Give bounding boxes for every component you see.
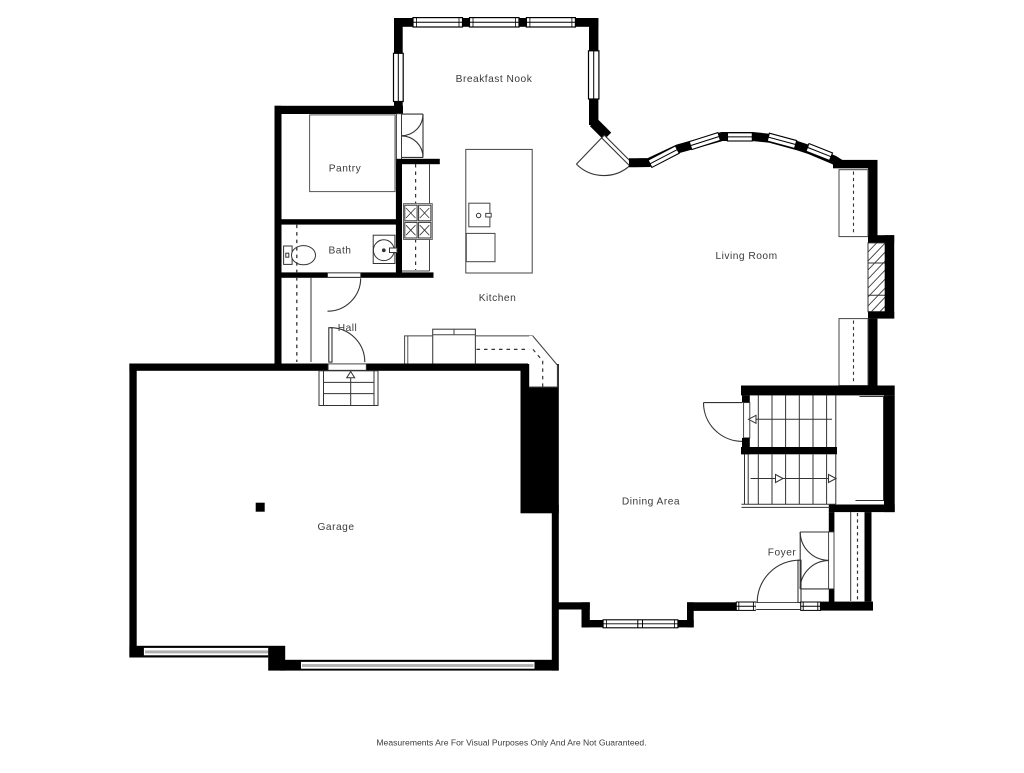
svg-text:Hall: Hall (338, 323, 358, 334)
svg-text:Living Room: Living Room (715, 251, 777, 262)
svg-text:Bath: Bath (329, 246, 352, 257)
svg-text:Dining Area: Dining Area (622, 497, 680, 508)
svg-text:Garage: Garage (318, 522, 355, 533)
svg-text:Kitchen: Kitchen (479, 293, 516, 304)
svg-text:Foyer: Foyer (768, 548, 797, 559)
svg-text:Pantry: Pantry (329, 164, 362, 175)
svg-text:Measurements Are For Visual Pu: Measurements Are For Visual Purposes Onl… (376, 738, 646, 748)
svg-text:Breakfast Nook: Breakfast Nook (456, 74, 533, 85)
